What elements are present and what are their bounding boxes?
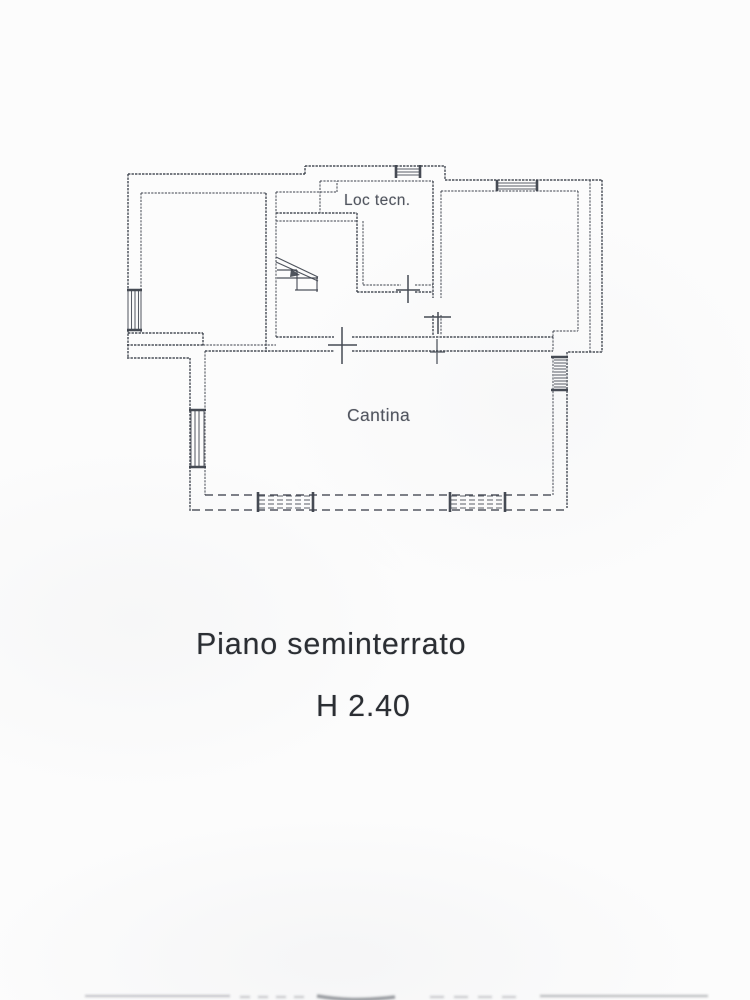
scan-artifact-bottom-smudge xyxy=(85,996,708,1000)
dashed-walls xyxy=(192,495,567,510)
window-top-east-room xyxy=(497,180,537,191)
scanned-floorplan-page: Loc tecn. Cantina Piano seminterrato H 2… xyxy=(0,0,750,1000)
staircase xyxy=(276,257,318,292)
floor-plan-drawing: Loc tecn. Cantina Piano seminterrato H 2… xyxy=(0,0,750,1000)
room-label-loc-tecn: Loc tecn. xyxy=(344,192,411,209)
door-mark-loc-tecn xyxy=(396,275,420,303)
floor-title: Piano seminterrato xyxy=(196,627,466,661)
door-mark-junction xyxy=(430,339,445,364)
plan-caption: Piano seminterrato H 2.40 xyxy=(196,627,466,723)
room-label-cantina: Cantina xyxy=(347,405,410,425)
window-top-north xyxy=(396,165,420,178)
room-labels: Loc tecn. Cantina xyxy=(344,192,411,425)
door-mark-right-room xyxy=(424,312,451,334)
window-west-upper xyxy=(127,290,142,330)
floor-height: H 2.40 xyxy=(316,689,411,723)
interior-walls xyxy=(141,180,590,495)
windows xyxy=(127,165,568,512)
exterior-walls xyxy=(127,166,602,512)
door-mark-cantina xyxy=(328,327,357,364)
window-west-cantina xyxy=(189,410,206,467)
